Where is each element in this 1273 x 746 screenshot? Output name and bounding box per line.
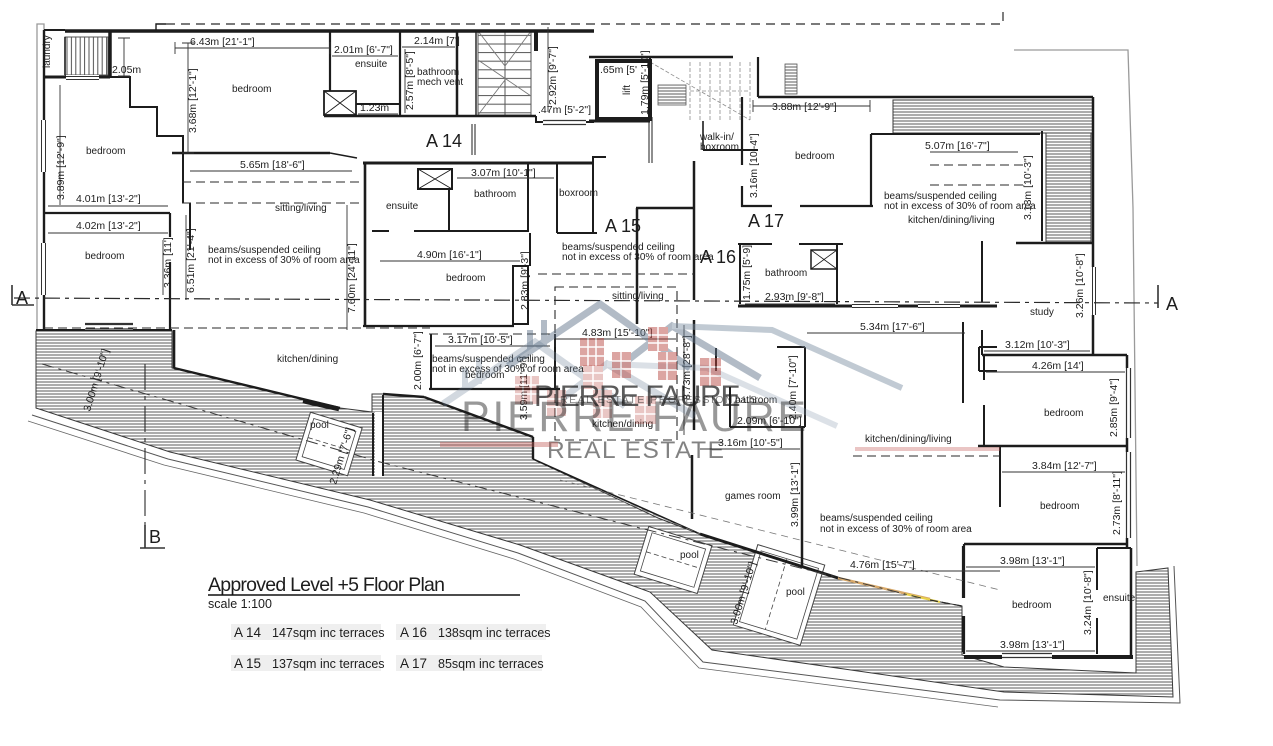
svg-text:3.24m [10'-8"]: 3.24m [10'-8"]	[1082, 570, 1094, 635]
svg-text:beams/suspended ceiling: beams/suspended ceiling	[820, 513, 933, 524]
svg-text:4.26m [14']: 4.26m [14']	[1032, 360, 1084, 372]
svg-text:2.57m [8'-5"]: 2.57m [8'-5"]	[404, 51, 416, 110]
svg-text:85sqm inc terraces: 85sqm inc terraces	[438, 657, 544, 671]
svg-text:bedroom: bedroom	[1012, 600, 1051, 611]
svg-text:bedroom: bedroom	[795, 151, 834, 162]
svg-text:138sqm inc terraces: 138sqm inc terraces	[438, 626, 551, 640]
svg-text:bedroom: bedroom	[1044, 408, 1083, 419]
svg-text:2.92m [9'-7"]: 2.92m [9'-7"]	[547, 46, 559, 105]
svg-text:3.36m [11']: 3.36m [11']	[162, 237, 174, 288]
svg-text:2.00m [6'-7"]: 2.00m [6'-7"]	[412, 331, 424, 390]
svg-text:6.43m [21'-1"]: 6.43m [21'-1"]	[190, 36, 255, 48]
svg-text:4.76m [15'-7"]: 4.76m [15'-7"]	[850, 559, 915, 571]
svg-text:2.83m [9'-3"]: 2.83m [9'-3"]	[519, 251, 531, 310]
svg-text:7.60m [24'-11"]: 7.60m [24'-11"]	[346, 243, 358, 313]
svg-text:A: A	[1166, 294, 1178, 314]
svg-text:kitchen/dining/living: kitchen/dining/living	[908, 215, 995, 226]
svg-text:4.01m [13'-2"]: 4.01m [13'-2"]	[76, 193, 141, 205]
svg-text:scale 1:100: scale 1:100	[208, 597, 272, 611]
svg-text:3.68m [12'-1"]: 3.68m [12'-1"]	[187, 68, 199, 133]
svg-text:ensuite: ensuite	[355, 59, 388, 70]
svg-text:REAL ESTATE PROFESSIONALS: REAL ESTATE PROFESSIONALS	[560, 394, 760, 406]
svg-text:sitting/living: sitting/living	[612, 291, 664, 302]
svg-text:B: B	[149, 527, 161, 547]
svg-text:1.75m [5'-9]: 1.75m [5'-9]	[741, 245, 753, 300]
svg-text:bathroom: bathroom	[474, 189, 516, 200]
svg-text:2.01m [6'-7"]: 2.01m [6'-7"]	[334, 44, 393, 56]
svg-text:3.98m [13'-1"]: 3.98m [13'-1"]	[1000, 639, 1065, 651]
svg-text:147sqm inc terraces: 147sqm inc terraces	[272, 626, 385, 640]
svg-text:boxroom: boxroom	[700, 142, 739, 153]
svg-text:bedroom: bedroom	[446, 273, 485, 284]
svg-text:A 16: A 16	[400, 625, 427, 640]
svg-text:A 15: A 15	[605, 216, 641, 236]
svg-text:1.23m: 1.23m	[360, 102, 389, 114]
svg-text:3.07m [10'-1"]: 3.07m [10'-1"]	[471, 167, 536, 179]
svg-text:3.16m [10'-4"]: 3.16m [10'-4"]	[748, 133, 760, 198]
svg-text:not in excess of 30% of room a: not in excess of 30% of room area	[208, 255, 360, 266]
svg-text:mech vent: mech vent	[417, 77, 463, 88]
svg-text:not in excess of 30% of room a: not in excess of 30% of room area	[884, 201, 1036, 212]
svg-text:3.99m [13'-1"]: 3.99m [13'-1"]	[789, 462, 801, 527]
svg-text:pool: pool	[786, 587, 805, 598]
svg-text:Approved Level +5 Floor Plan: Approved Level +5 Floor Plan	[208, 574, 445, 596]
svg-text:bedroom: bedroom	[232, 84, 271, 95]
svg-text:laundry: laundry	[42, 35, 53, 68]
svg-text:A: A	[16, 288, 28, 308]
svg-text:3.98m [13'-1"]: 3.98m [13'-1"]	[1000, 555, 1065, 567]
svg-text:not in excess of 30% of room a: not in excess of 30% of room area	[562, 252, 714, 263]
svg-text:3.26m [10'-8"]: 3.26m [10'-8"]	[1074, 253, 1086, 318]
svg-text:3.13m [10'-3"]: 3.13m [10'-3"]	[1022, 155, 1034, 220]
svg-text:A 15: A 15	[234, 656, 261, 671]
svg-text:.47m [5'-2"]: .47m [5'-2"]	[538, 104, 591, 116]
svg-text:pool: pool	[310, 420, 329, 431]
svg-text:1.79m [5'-10"]: 1.79m [5'-10"]	[639, 50, 651, 115]
svg-text:kitchen/dining: kitchen/dining	[277, 354, 338, 365]
svg-text:4.02m [13'-2"]: 4.02m [13'-2"]	[76, 220, 141, 232]
svg-text:ensuite: ensuite	[1103, 593, 1136, 604]
svg-text:A 14: A 14	[426, 131, 462, 151]
svg-text:3.89m [12'-9"]: 3.89m [12'-9"]	[55, 135, 67, 200]
svg-text:sitting/living: sitting/living	[275, 203, 327, 214]
svg-text:2.73m [8'-11"]: 2.73m [8'-11"]	[1111, 471, 1123, 535]
svg-text:study: study	[1030, 307, 1054, 318]
svg-text:2.85m [9'-4"]: 2.85m [9'-4"]	[1108, 378, 1120, 437]
svg-text:3.17m [10'-5"]: 3.17m [10'-5"]	[448, 334, 513, 346]
svg-text:games room: games room	[725, 491, 781, 502]
svg-text:pool: pool	[680, 550, 699, 561]
svg-text:bedroom: bedroom	[86, 146, 125, 157]
svg-text:bathroom: bathroom	[765, 268, 807, 279]
svg-text:2.14m [7']: 2.14m [7']	[414, 35, 460, 47]
svg-text:5.65m [18'-6"]: 5.65m [18'-6"]	[240, 159, 305, 171]
svg-text:bedroom: bedroom	[85, 251, 124, 262]
svg-text:A 17: A 17	[748, 211, 784, 231]
svg-text:bedroom: bedroom	[1040, 501, 1079, 512]
svg-text:A 14: A 14	[234, 625, 262, 640]
svg-text:REAL ESTATE: REAL ESTATE	[547, 437, 728, 464]
svg-text:2.93m [9'-8"]: 2.93m [9'-8"]	[765, 291, 824, 303]
svg-text:boxroom: boxroom	[559, 188, 598, 199]
svg-text:3.12m [10'-3"]: 3.12m [10'-3"]	[1005, 339, 1070, 351]
svg-text:not in excess of 30% of room a: not in excess of 30% of room area	[820, 524, 972, 535]
svg-text:5.07m [16'-7"]: 5.07m [16'-7"]	[925, 140, 990, 152]
svg-text:4.90m [16'-1"]: 4.90m [16'-1"]	[417, 249, 482, 261]
svg-text:lift: lift	[622, 85, 633, 95]
svg-text:2.05m: 2.05m	[112, 64, 141, 76]
svg-text:.65m [5': .65m [5'	[600, 64, 637, 76]
svg-text:6.51m [21'-4"]: 6.51m [21'-4"]	[185, 228, 197, 293]
svg-text:3.88m [12'-9"]: 3.88m [12'-9"]	[772, 101, 837, 113]
svg-text:137sqm inc terraces: 137sqm inc terraces	[272, 657, 385, 671]
svg-text:A 17: A 17	[400, 656, 427, 671]
svg-text:ensuite: ensuite	[386, 201, 419, 212]
svg-text:3.84m [12'-7"]: 3.84m [12'-7"]	[1032, 460, 1097, 472]
svg-text:kitchen/dining/living: kitchen/dining/living	[865, 434, 952, 445]
svg-text:5.34m [17'-6"]: 5.34m [17'-6"]	[860, 321, 925, 333]
